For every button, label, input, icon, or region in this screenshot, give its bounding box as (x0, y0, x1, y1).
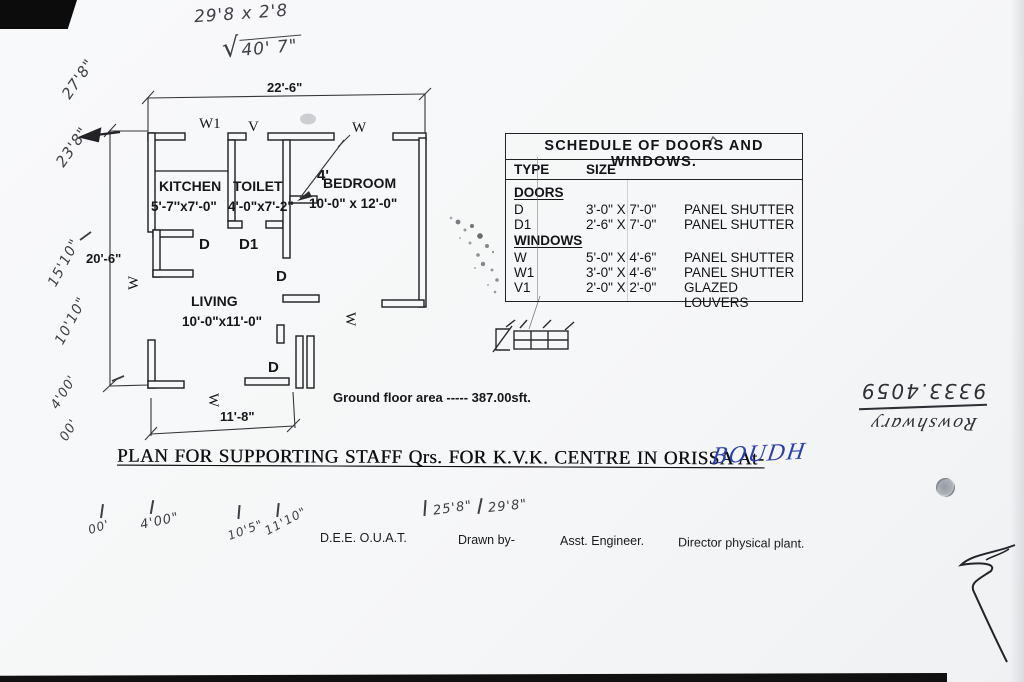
cell-size: 5'-0" X 4'-6" (586, 250, 656, 265)
schedule-col-size: SIZE (586, 162, 616, 177)
wall-segment (228, 133, 246, 140)
schedule-section-windows: WINDOWS (514, 233, 802, 249)
scan-fold-line (537, 157, 538, 301)
radical-value: 40' 7" (240, 35, 303, 61)
room-size-toilet: 4'-0"x7'-2" (228, 199, 294, 214)
schedule-title: SCHEDULE OF DOORS AND WINDOWS. (506, 134, 802, 160)
radical-sign: √ (221, 32, 242, 64)
room-label-kitchen: KITCHEN (159, 178, 221, 194)
cell-desc: PANEL SHUTTER (684, 265, 794, 280)
location-handwritten: BOUDH (710, 438, 808, 470)
wall-segment (283, 295, 319, 302)
cell-size: 3'-0" X 4'-6" (586, 265, 656, 280)
cell-desc: PANEL SHUTTER (684, 202, 794, 217)
schedule-section-doors: DOORS (514, 185, 802, 201)
cell-type: W (514, 250, 527, 265)
scanned-floor-plan-page: 22'-6" 20'-6" 11'-8" 4' W1 V W W W W D D… (0, 0, 1024, 682)
cell-type: W1 (514, 265, 534, 280)
signature-engineer: Asst. Engineer. (560, 534, 644, 548)
wall-segment (266, 221, 283, 228)
window-label-w: W (352, 120, 367, 136)
room-label-living: LIVING (191, 293, 238, 309)
underline-stroke (859, 404, 987, 410)
cell-desc: PANEL SHUTTER (684, 250, 794, 265)
cell-type: V1 (514, 280, 531, 295)
window-label-v: V (248, 119, 259, 135)
pen-scribble (961, 545, 1015, 662)
wall-segment (148, 381, 184, 388)
upside-down-word: Rowshwary (835, 412, 1010, 434)
wall-segment (268, 133, 334, 140)
cell-size: 2'-6" X 7'-0" (586, 217, 656, 232)
window-label-w-bottom: W (205, 393, 221, 408)
cell-size: 2'-0" X 2'-0" (586, 280, 656, 295)
room-size-kitchen: 5'-7''x7'-0" (151, 199, 217, 214)
table-row: D 3'-0" X 7'-0" PANEL SHUTTER (506, 202, 802, 217)
signature-director: Director physical plant. (678, 535, 805, 550)
wall-segment (277, 325, 284, 343)
window-label-w-right: W (342, 312, 358, 327)
door-label-d: D (199, 236, 210, 253)
area-note: Ground floor area ----- 387.00sft. (333, 390, 531, 405)
room-size-living: 10'-0"x11'-0" (182, 314, 262, 329)
hand-sketch (493, 296, 574, 352)
window-label-w-left: W (126, 275, 142, 290)
dim-left-label: 20'-6" (86, 251, 121, 266)
schedule-body: DOORS D 3'-0" X 7'-0" PANEL SHUTTER D1 2… (506, 180, 802, 295)
upside-down-number: 9333.4059 (838, 379, 1008, 403)
door-label-d-mid: D (276, 268, 287, 285)
ink-blot (450, 217, 499, 294)
wall-segment (419, 138, 426, 307)
schedule-header: TYPE SIZE (506, 160, 802, 180)
cell-type: D (514, 202, 524, 217)
room-size-bedroom: 10'-0" x 12'-0" (309, 196, 397, 211)
table-row: W 5'-0" X 4'-6" PANEL SHUTTER (506, 250, 802, 265)
door-label-d-low: D (268, 359, 279, 376)
table-row: W1 3'-0" X 4'-6" PANEL SHUTTER (506, 265, 802, 280)
window-label-w1: W1 (199, 116, 221, 132)
scan-fold-line (627, 180, 628, 301)
scan-edge-shadow (1010, 0, 1024, 682)
cell-size: 3'-0" X 7'-0" (586, 202, 656, 217)
page-title: PLAN FOR SUPPORTING STAFF Qrs. FOR K.V.K… (117, 446, 764, 471)
cell-desc: GLAZED LOUVERS (684, 280, 802, 310)
dim-top-label: 22'-6" (267, 80, 302, 95)
signature-office: D.E.E. O.U.A.T. (320, 531, 407, 545)
table-row: D1 2'-6" X 7'-0" PANEL SHUTTER (506, 217, 802, 232)
table-row: V1 2'-0" X 2'-0" GLAZED LOUVERS (506, 280, 802, 295)
wall-segment (382, 300, 424, 307)
wall-segment (228, 221, 242, 228)
scan-smudge (300, 114, 316, 125)
signature-drawn-by: Drawn by- (458, 533, 515, 547)
room-label-toilet: TOILET (233, 178, 283, 194)
upside-down-note: Rowshwary 9333.4059 (838, 348, 1008, 434)
wall-segment (296, 336, 303, 388)
gray-stamp-dot (936, 478, 955, 497)
wall-segment (307, 336, 314, 388)
door-label-d1: D1 (239, 236, 258, 253)
cell-type: D1 (514, 217, 531, 232)
wall-segment (148, 133, 155, 232)
room-label-bedroom: BEDROOM (323, 175, 396, 191)
wall-segment (245, 378, 289, 385)
wall-segment (153, 270, 193, 277)
cell-desc: PANEL SHUTTER (684, 217, 794, 232)
scan-corner-black (0, 0, 77, 29)
floor-plan-drawing: 22'-6" 20'-6" 11'-8" 4' W1 V W W W W D D… (0, 0, 1024, 682)
schedule-col-type: TYPE (514, 162, 549, 177)
schedule-table: SCHEDULE OF DOORS AND WINDOWS. TYPE SIZE… (505, 133, 803, 302)
dim-bottom-label: 11'-8" (220, 409, 255, 424)
